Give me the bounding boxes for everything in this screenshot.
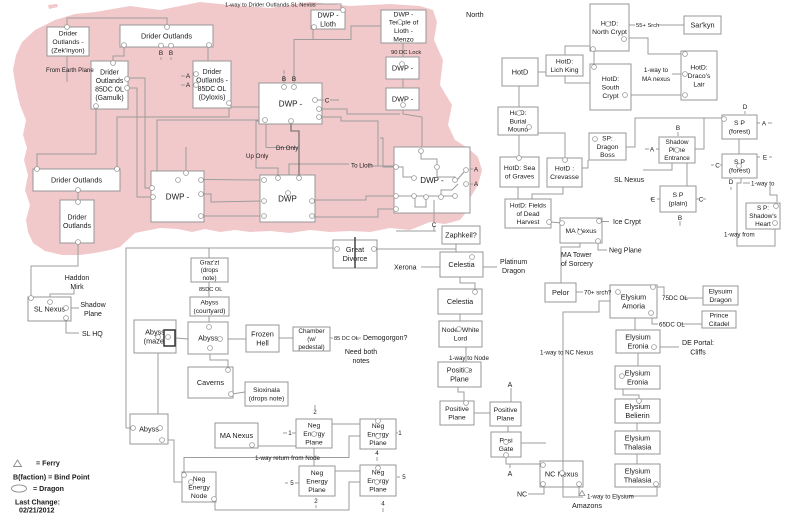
svg-text:Lord: Lord	[454, 336, 468, 343]
svg-text:Hell: Hell	[256, 339, 269, 348]
svg-text:85DC OL: 85DC OL	[199, 287, 222, 293]
svg-text:Eronia: Eronia	[627, 378, 649, 387]
svg-text:4: 4	[381, 501, 385, 508]
svg-text:B: B	[282, 76, 286, 83]
svg-text:Plane: Plane	[497, 416, 515, 423]
svg-text:Sar'kyn: Sar'kyn	[690, 21, 714, 30]
svg-text:Plane: Plane	[308, 487, 326, 494]
svg-text:Abyss: Abyss	[198, 334, 218, 343]
svg-text:Eronia: Eronia	[627, 342, 649, 351]
svg-text:Abyss: Abyss	[145, 328, 165, 337]
svg-text:B: B	[292, 76, 296, 83]
svg-text:HotD: Fields: HotD: Fields	[510, 203, 547, 210]
svg-text:A: A	[508, 471, 513, 478]
svg-text:Positive: Positive	[445, 406, 469, 413]
svg-text:85DC OL: 85DC OL	[198, 86, 227, 93]
svg-text:(drops note): (drops note)	[249, 395, 285, 402]
svg-text:A: A	[762, 121, 767, 128]
svg-text:note): note)	[202, 275, 216, 282]
svg-text:Dn Only: Dn Only	[276, 145, 299, 152]
svg-text:1-way to NC Nexus: 1-way to NC Nexus	[540, 350, 593, 357]
svg-text:Entrance: Entrance	[664, 155, 690, 162]
svg-text:85DC OL: 85DC OL	[95, 87, 124, 94]
svg-text:1: 1	[398, 430, 402, 437]
svg-text:(drops: (drops	[201, 267, 219, 274]
svg-text:B(faction) = Bind Point: B(faction) = Bind Point	[13, 474, 90, 482]
svg-text:SL Nexus: SL Nexus	[34, 305, 66, 314]
svg-text:B: B	[169, 50, 173, 57]
svg-text:Dragon: Dragon	[709, 297, 732, 304]
svg-text:MA nexus: MA nexus	[642, 76, 670, 83]
svg-text:Elysium: Elysium	[625, 467, 651, 476]
svg-text:1-way to: 1-way to	[751, 181, 775, 188]
svg-text:A: A	[186, 82, 191, 89]
svg-text:90 DC Lock: 90 DC Lock	[391, 50, 421, 56]
svg-text:Elysium: Elysium	[625, 333, 651, 342]
svg-text:Abyss: Abyss	[201, 300, 220, 307]
svg-text:Mirk: Mirk	[70, 284, 84, 291]
svg-text:Outlands -: Outlands -	[196, 78, 228, 85]
svg-text:Amazons: Amazons	[572, 501, 602, 510]
svg-text:SL HQ: SL HQ	[82, 331, 103, 338]
svg-text:Energy: Energy	[306, 478, 328, 485]
svg-text:Zaphkeil?: Zaphkeil?	[445, 231, 477, 240]
svg-text:Thalasia: Thalasia	[624, 443, 653, 452]
svg-text:Heart: Heart	[755, 221, 771, 228]
svg-text:Graz'zt: Graz'zt	[200, 259, 220, 266]
svg-text:Celestia: Celestia	[448, 260, 475, 269]
svg-text:70+ srch?: 70+ srch?	[584, 290, 612, 297]
svg-text:S P:: S P:	[757, 205, 769, 212]
svg-text:Last Change:: Last Change:	[15, 499, 60, 507]
svg-text:HotD: HotD	[512, 68, 529, 77]
svg-text:North: North	[466, 10, 484, 19]
svg-text:DE Portal:: DE Portal:	[682, 340, 714, 347]
svg-text:C: C	[715, 163, 720, 170]
svg-text:S P: S P	[734, 120, 745, 127]
svg-text:HotD :: HotD :	[555, 166, 574, 173]
svg-text:A: A	[474, 167, 479, 174]
svg-text:Elysium: Elysium	[621, 293, 647, 302]
svg-text:Neg: Neg	[311, 470, 324, 477]
svg-text:Node: Node	[191, 493, 207, 500]
svg-text:Demogorgon?: Demogorgon?	[363, 335, 407, 342]
svg-text:notes: notes	[352, 358, 370, 365]
svg-text:Caverns: Caverns	[197, 378, 225, 387]
svg-text:55+ Srch: 55+ Srch	[636, 23, 659, 29]
svg-text:pedestal): pedestal)	[298, 344, 324, 351]
svg-text:of Sorcery: of Sorcery	[561, 261, 593, 268]
svg-text:Dragon: Dragon	[502, 268, 525, 275]
svg-text:Elysium: Elysium	[625, 434, 651, 443]
svg-text:HotD: Sea: HotD: Sea	[504, 165, 536, 172]
svg-text:Neg Plane: Neg Plane	[609, 248, 642, 255]
svg-text:Celestia: Celestia	[447, 297, 474, 306]
svg-text:D: D	[743, 104, 748, 111]
svg-text:(w/: (w/	[307, 336, 316, 343]
svg-text:B: B	[159, 50, 163, 57]
svg-text:(plain): (plain)	[669, 201, 688, 208]
svg-text:MA Tower: MA Tower	[561, 252, 592, 259]
svg-text:Chamber: Chamber	[298, 328, 325, 335]
svg-text:DWP -: DWP -	[394, 11, 414, 18]
svg-text:Amoria: Amoria	[622, 302, 646, 311]
svg-text:DWP -: DWP -	[166, 192, 190, 201]
svg-text:Need both: Need both	[345, 349, 377, 356]
svg-text:HotD:: HotD:	[690, 65, 707, 72]
svg-text:= Dragon: = Dragon	[33, 485, 64, 493]
svg-text:Haddon: Haddon	[65, 275, 90, 282]
svg-text:Elysium: Elysium	[625, 369, 651, 378]
svg-text:B: B	[676, 125, 680, 132]
svg-text:MA Nexus: MA Nexus	[220, 431, 254, 440]
svg-text:02/21/2012: 02/21/2012	[19, 507, 55, 515]
svg-text:North Crypt: North Crypt	[592, 29, 627, 36]
svg-text:Positive: Positive	[494, 407, 518, 414]
svg-text:5: 5	[402, 474, 406, 481]
svg-text:Up Only: Up Only	[246, 153, 269, 160]
svg-text:Plane: Plane	[84, 311, 102, 318]
svg-text:85 DC OL: 85 DC OL	[334, 336, 359, 342]
svg-text:Neg: Neg	[372, 423, 385, 430]
svg-text:(Gamulk): (Gamulk)	[95, 95, 123, 102]
svg-text:Citadel: Citadel	[709, 321, 730, 328]
svg-text:Crypt: Crypt	[602, 93, 618, 100]
svg-text:A: A	[650, 147, 655, 154]
svg-text:SP:: SP:	[602, 136, 613, 143]
svg-text:NC: NC	[517, 492, 527, 499]
svg-text:Drider: Drider	[67, 215, 87, 222]
svg-text:Elysuim: Elysuim	[709, 289, 733, 296]
svg-text:Sioxinala: Sioxinala	[253, 387, 280, 394]
svg-text:Drider: Drider	[59, 31, 78, 38]
svg-text:1-way return from Node: 1-way return from Node	[255, 455, 321, 462]
svg-text:Shadow's: Shadow's	[749, 213, 777, 220]
svg-text:Plane: Plane	[369, 440, 387, 447]
svg-text:Belierin: Belierin	[625, 411, 649, 420]
svg-text:Draco's: Draco's	[688, 73, 711, 80]
svg-text:Drider: Drider	[100, 70, 119, 77]
svg-text:(courtyard): (courtyard)	[194, 308, 226, 315]
svg-text:(maze): (maze)	[144, 337, 167, 346]
svg-text:(Dyloxis): (Dyloxis)	[199, 95, 226, 102]
svg-text:South: South	[602, 84, 620, 91]
svg-text:Plane: Plane	[450, 375, 469, 384]
svg-text:Neg: Neg	[308, 423, 321, 430]
svg-text:1-way to: 1-way to	[644, 67, 669, 74]
svg-text:DWP -: DWP -	[279, 99, 303, 108]
svg-text:HotD:: HotD:	[556, 59, 573, 66]
svg-text:2: 2	[314, 498, 318, 505]
svg-text:E: E	[651, 197, 655, 204]
svg-text:From Earth Plane: From Earth Plane	[46, 67, 94, 74]
svg-text:Outlands: Outlands	[63, 223, 92, 230]
svg-text:65DC OL: 65DC OL	[659, 322, 685, 329]
svg-text:C: C	[325, 98, 330, 105]
svg-text:1: 1	[288, 430, 292, 437]
svg-text:= Ferry: = Ferry	[36, 460, 60, 468]
svg-text:A: A	[508, 382, 513, 389]
svg-text:Drider Outlands: Drider Outlands	[51, 176, 102, 185]
svg-text:5: 5	[290, 480, 294, 487]
svg-text:Menzo: Menzo	[393, 37, 414, 44]
svg-text:Abyss: Abyss	[139, 425, 159, 434]
svg-text:DWP -: DWP -	[317, 11, 339, 20]
svg-text:Ice Crypt: Ice Crypt	[613, 219, 641, 226]
svg-text:Neg: Neg	[193, 476, 206, 483]
svg-text:Pelor: Pelor	[552, 288, 570, 297]
svg-text:Lair: Lair	[693, 81, 705, 88]
svg-text:Plane: Plane	[305, 439, 323, 446]
svg-text:1-way to Drider Outlands SL N: 1-way to Drider Outlands SL Nexus	[225, 3, 316, 9]
svg-text:(forest): (forest)	[729, 129, 751, 136]
svg-text:Plane: Plane	[369, 486, 387, 493]
svg-text:B: B	[678, 215, 682, 222]
svg-text:Crevasse: Crevasse	[550, 174, 579, 181]
svg-text:Elysium: Elysium	[625, 402, 651, 411]
svg-text:1-way to Node: 1-way to Node	[449, 355, 489, 362]
svg-text:SL Nexus: SL Nexus	[614, 177, 645, 184]
svg-text:Mound: Mound	[508, 127, 528, 134]
svg-text:Gate: Gate	[499, 446, 514, 453]
svg-text:Platinum: Platinum	[500, 259, 527, 266]
svg-text:Xerona: Xerona	[394, 265, 417, 272]
svg-text:Prince: Prince	[710, 313, 729, 320]
svg-text:E: E	[763, 155, 767, 162]
svg-text:Thalasia: Thalasia	[624, 476, 653, 485]
svg-text:2: 2	[313, 409, 317, 416]
svg-text:Burial: Burial	[510, 118, 527, 125]
svg-text:4: 4	[375, 450, 379, 457]
svg-text:Lloth -: Lloth -	[394, 28, 413, 35]
svg-text:Drider: Drider	[203, 69, 222, 76]
svg-text:Outlands: Outlands	[96, 78, 124, 85]
svg-text:Harvest: Harvest	[517, 219, 540, 226]
svg-text:of Graves: of Graves	[505, 174, 535, 181]
svg-text:Lich King: Lich King	[551, 67, 579, 74]
svg-text:A: A	[474, 181, 479, 188]
svg-text:(Zek'inyon): (Zek'inyon)	[51, 47, 84, 54]
svg-text:Temple of: Temple of	[389, 20, 419, 27]
svg-text:C: C	[432, 222, 437, 229]
svg-text:D: D	[729, 179, 734, 186]
svg-text:C: C	[699, 197, 704, 204]
svg-text:Shadow: Shadow	[665, 139, 688, 146]
svg-text:To Lloth: To Lloth	[351, 163, 373, 170]
svg-text:Plane: Plane	[448, 415, 466, 422]
svg-text:1-way to Elysium: 1-way to Elysium	[587, 494, 634, 501]
svg-text:Frozen: Frozen	[251, 330, 274, 339]
svg-text:Boss: Boss	[600, 152, 615, 159]
svg-text:Cliffs: Cliffs	[690, 350, 706, 357]
svg-text:Energy: Energy	[188, 484, 210, 491]
svg-text:A: A	[186, 73, 191, 80]
svg-text:Drider Outlands: Drider Outlands	[141, 32, 192, 41]
svg-text:HotD:: HotD:	[602, 76, 619, 83]
svg-text:Shadow: Shadow	[80, 302, 106, 309]
svg-text:Lloth: Lloth	[320, 20, 336, 29]
svg-text:Dragon: Dragon	[597, 144, 619, 151]
svg-text:of Dead: of Dead	[516, 211, 539, 218]
svg-text:75DC OL: 75DC OL	[662, 295, 688, 302]
svg-text:S P: S P	[673, 192, 684, 199]
svg-text:Outlands -: Outlands -	[52, 39, 83, 46]
svg-text:1-way from: 1-way from	[724, 232, 755, 239]
